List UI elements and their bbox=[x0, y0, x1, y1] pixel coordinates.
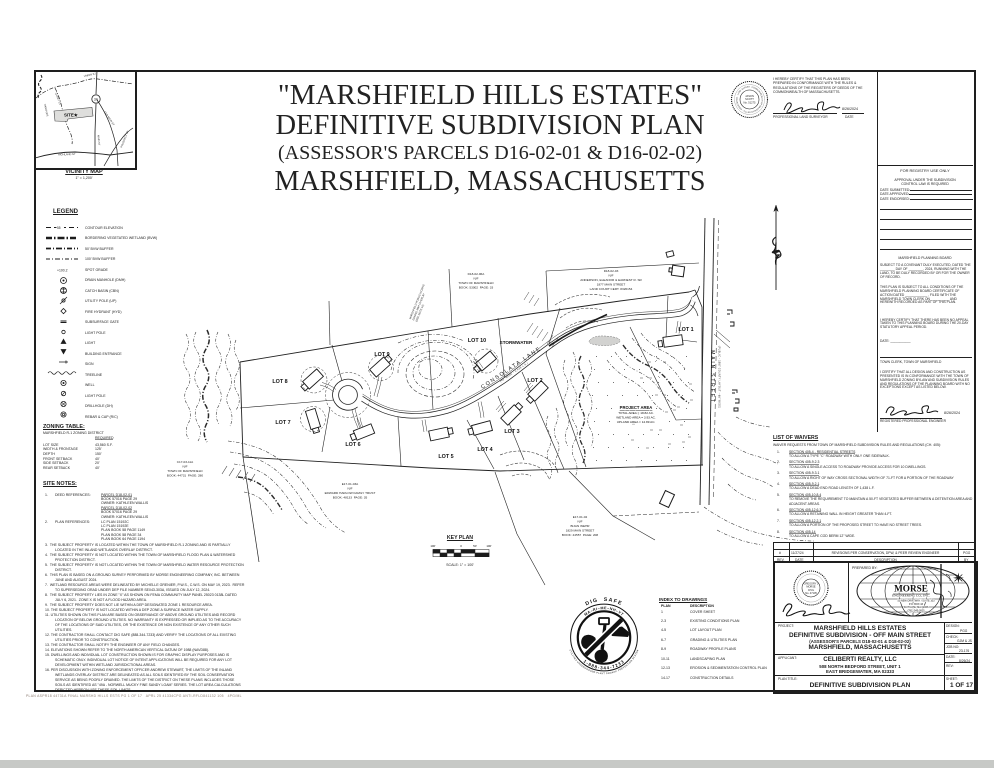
svg-text:(PUBLIC - 1957 COUNTY LAYOUT -: (PUBLIC - 1957 COUNTY LAYOUT - 66' WIDE) bbox=[718, 346, 721, 409]
svg-text:SITE★: SITE★ bbox=[64, 113, 78, 118]
svg-text:PROSPECT ST: PROSPECT ST bbox=[119, 130, 130, 149]
svg-text:COMMONWEALTH OF MASSACHUSETTS: COMMONWEALTH OF MASSACHUSETTS · REGISTER… bbox=[0, 0, 763, 113]
svg-text:BOOK: 48133 PAGE: 35: BOOK: 48133 PAGE: 35 bbox=[333, 496, 368, 500]
svg-text:1877 MAIN STREET: 1877 MAIN STREET bbox=[597, 283, 626, 287]
svg-text:DIG SAFE: DIG SAFE bbox=[585, 597, 624, 607]
svg-text:LAND COURT CERT. #326154: LAND COURT CERT. #326154 bbox=[590, 287, 633, 291]
svg-text:LOT 5: LOT 5 bbox=[438, 454, 453, 460]
svg-text:LOT 1: LOT 1 bbox=[678, 327, 693, 333]
svg-text:D18-02-06A: D18-02-06A bbox=[468, 272, 486, 276]
svg-text:LOT 4: LOT 4 bbox=[477, 447, 492, 453]
svg-text:E17-01-03A: E17-01-03A bbox=[342, 482, 359, 486]
svg-text:BOOK: 44731 PAGE: 280: BOOK: 44731 PAGE: 280 bbox=[167, 474, 204, 478]
svg-text:50': 50' bbox=[473, 544, 477, 548]
svg-text:LOT 10: LOT 10 bbox=[468, 338, 486, 344]
svg-text:BOOK: 44557 PAGE: 208: BOOK: 44557 PAGE: 208 bbox=[562, 533, 599, 537]
svg-text:No. 47105: No. 47105 bbox=[805, 592, 817, 595]
svg-text:LOT 6: LOT 6 bbox=[345, 442, 360, 448]
svg-text:UPLAND AREA = 14.89 AC.: UPLAND AREA = 14.89 AC. bbox=[617, 420, 656, 424]
svg-text:HIGHLAND ST: HIGHLAND ST bbox=[58, 152, 76, 157]
svg-text:TOWN OF MARSHFIELD: TOWN OF MARSHFIELD bbox=[458, 281, 494, 285]
svg-text:LOT 7: LOT 7 bbox=[275, 420, 290, 426]
svg-text:TOTAL AREA = 18.82 AC.: TOTAL AREA = 18.82 AC. bbox=[618, 411, 654, 415]
svg-text:MAIN ST: MAIN ST bbox=[97, 135, 102, 146]
svg-text:E17-01-02: E17-01-02 bbox=[573, 515, 588, 519]
svg-text:ANDERSON, ELEANOR & EARNEST R.: ANDERSON, ELEANOR & EARNEST R. SR bbox=[580, 278, 642, 282]
svg-text:EDWARD HARLOW FAMILY TRUST: EDWARD HARLOW FAMILY TRUST bbox=[325, 491, 376, 495]
svg-text:WETLAND AREA = 3.93 AC.: WETLAND AREA = 3.93 AC. bbox=[616, 416, 656, 420]
svg-text:N/F: N/F bbox=[474, 277, 479, 281]
svg-text:C17-03-11A: C17-03-11A bbox=[177, 460, 194, 464]
svg-text:UNION ST: UNION ST bbox=[83, 71, 96, 78]
svg-text:STORMWATER: STORMWATER bbox=[500, 340, 533, 345]
svg-text:LOT 3: LOT 3 bbox=[504, 429, 519, 435]
svg-text:100': 100' bbox=[486, 544, 492, 548]
svg-text:HANOVER: HANOVER bbox=[43, 103, 50, 117]
svg-text:D18-02-03: D18-02-03 bbox=[604, 269, 619, 273]
svg-text:1829 MAIN STREET: 1829 MAIN STREET bbox=[566, 529, 595, 533]
svg-text:LOT 9: LOT 9 bbox=[374, 352, 389, 358]
svg-text:100': 100' bbox=[430, 544, 436, 548]
svg-text:BIJAN WEHR: BIJAN WEHR bbox=[570, 524, 590, 528]
svg-text:(781) 545-0925: (781) 545-0925 bbox=[907, 609, 925, 612]
svg-text:LOT 8: LOT 8 bbox=[272, 379, 287, 385]
svg-text:N/F: N/F bbox=[578, 520, 583, 524]
svg-text:LOT 2: LOT 2 bbox=[527, 378, 542, 384]
svg-text:CAREY ST: CAREY ST bbox=[54, 92, 62, 106]
svg-text:BOOK: 53002 PAGE: 33: BOOK: 53002 PAGE: 33 bbox=[459, 286, 494, 290]
svg-text:N/F: N/F bbox=[348, 487, 353, 491]
svg-text:N/F: N/F bbox=[609, 274, 614, 278]
svg-text:0: 0 bbox=[460, 544, 462, 548]
svg-text:PROJECT AREA: PROJECT AREA bbox=[620, 405, 653, 410]
svg-text:N/F: N/F bbox=[183, 465, 188, 469]
svg-text:TOWN OF MARSHFIELD: TOWN OF MARSHFIELD bbox=[167, 469, 203, 473]
svg-text:3A: 3A bbox=[94, 98, 99, 102]
svg-text:No. 51275: No. 51275 bbox=[744, 100, 757, 104]
svg-text:MORSE: MORSE bbox=[894, 584, 928, 594]
svg-text:MAIN STREET: MAIN STREET bbox=[709, 350, 715, 403]
